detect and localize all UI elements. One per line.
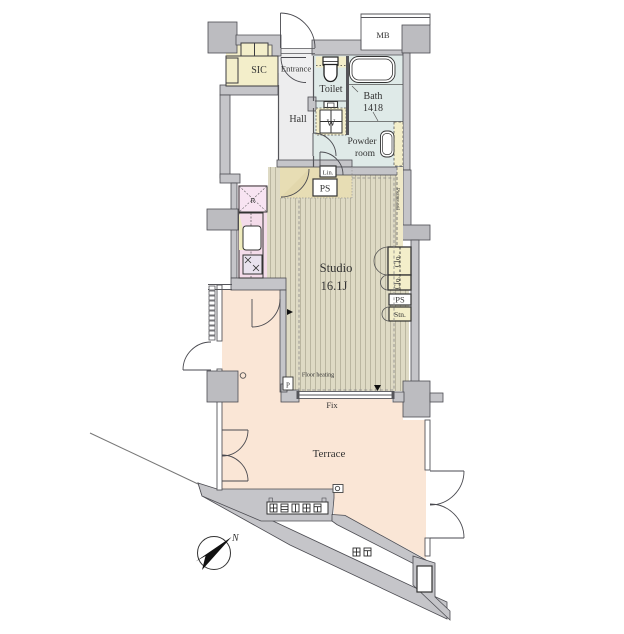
svg-text:W: W [327, 118, 336, 128]
svg-text:Picture rail: Picture rail [395, 188, 400, 211]
svg-text:Lin.: Lin. [323, 170, 334, 177]
svg-text:Toilet: Toilet [319, 84, 342, 95]
svg-text:PS: PS [395, 295, 405, 305]
svg-text:Entrance: Entrance [281, 64, 311, 74]
svg-text:Bath: Bath [364, 91, 383, 102]
svg-text:Clo.: Clo. [393, 277, 402, 290]
svg-text:Floor heating: Floor heating [302, 373, 334, 379]
svg-text:MB: MB [376, 30, 390, 40]
svg-text:Hall: Hall [289, 114, 306, 125]
svg-text:SIC: SIC [251, 65, 267, 76]
svg-text:Terrace: Terrace [313, 448, 346, 460]
svg-text:Powder: Powder [347, 137, 377, 147]
svg-text:Stn.: Stn. [394, 310, 406, 319]
svg-text:Fix: Fix [326, 400, 338, 410]
svg-text:Studio: Studio [320, 261, 353, 275]
svg-text:1418: 1418 [363, 103, 383, 114]
svg-text:16.1J: 16.1J [321, 279, 348, 293]
svg-text:PS: PS [320, 185, 331, 195]
svg-text:R: R [250, 196, 255, 205]
svg-text:room: room [355, 149, 376, 159]
svg-text:P: P [286, 382, 290, 390]
svg-text:N: N [231, 533, 240, 544]
svg-text:Clo.: Clo. [393, 255, 402, 268]
